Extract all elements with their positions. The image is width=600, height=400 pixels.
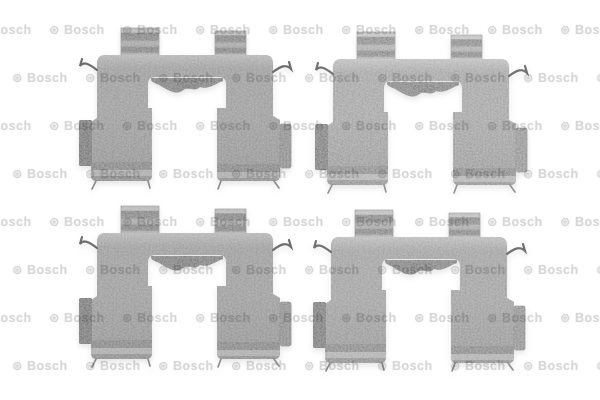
clip-bottom-right — [310, 202, 530, 372]
clip-top-left — [76, 20, 296, 190]
product-photo: ⊛ Bosch⊛ Bosch⊛ Bosch⊛ Bosch⊛ Bosch⊛ Bos… — [0, 0, 600, 400]
brake-pad-fitting-clip-shape — [313, 210, 525, 371]
brake-pad-fitting-clip-shape — [79, 28, 291, 189]
clip-top-right — [312, 24, 532, 194]
brake-pad-fitting-clip-shape — [79, 206, 291, 367]
clip-bottom-left — [76, 198, 296, 368]
clips-layer — [0, 0, 600, 400]
brake-pad-fitting-clip-shape — [315, 32, 527, 193]
